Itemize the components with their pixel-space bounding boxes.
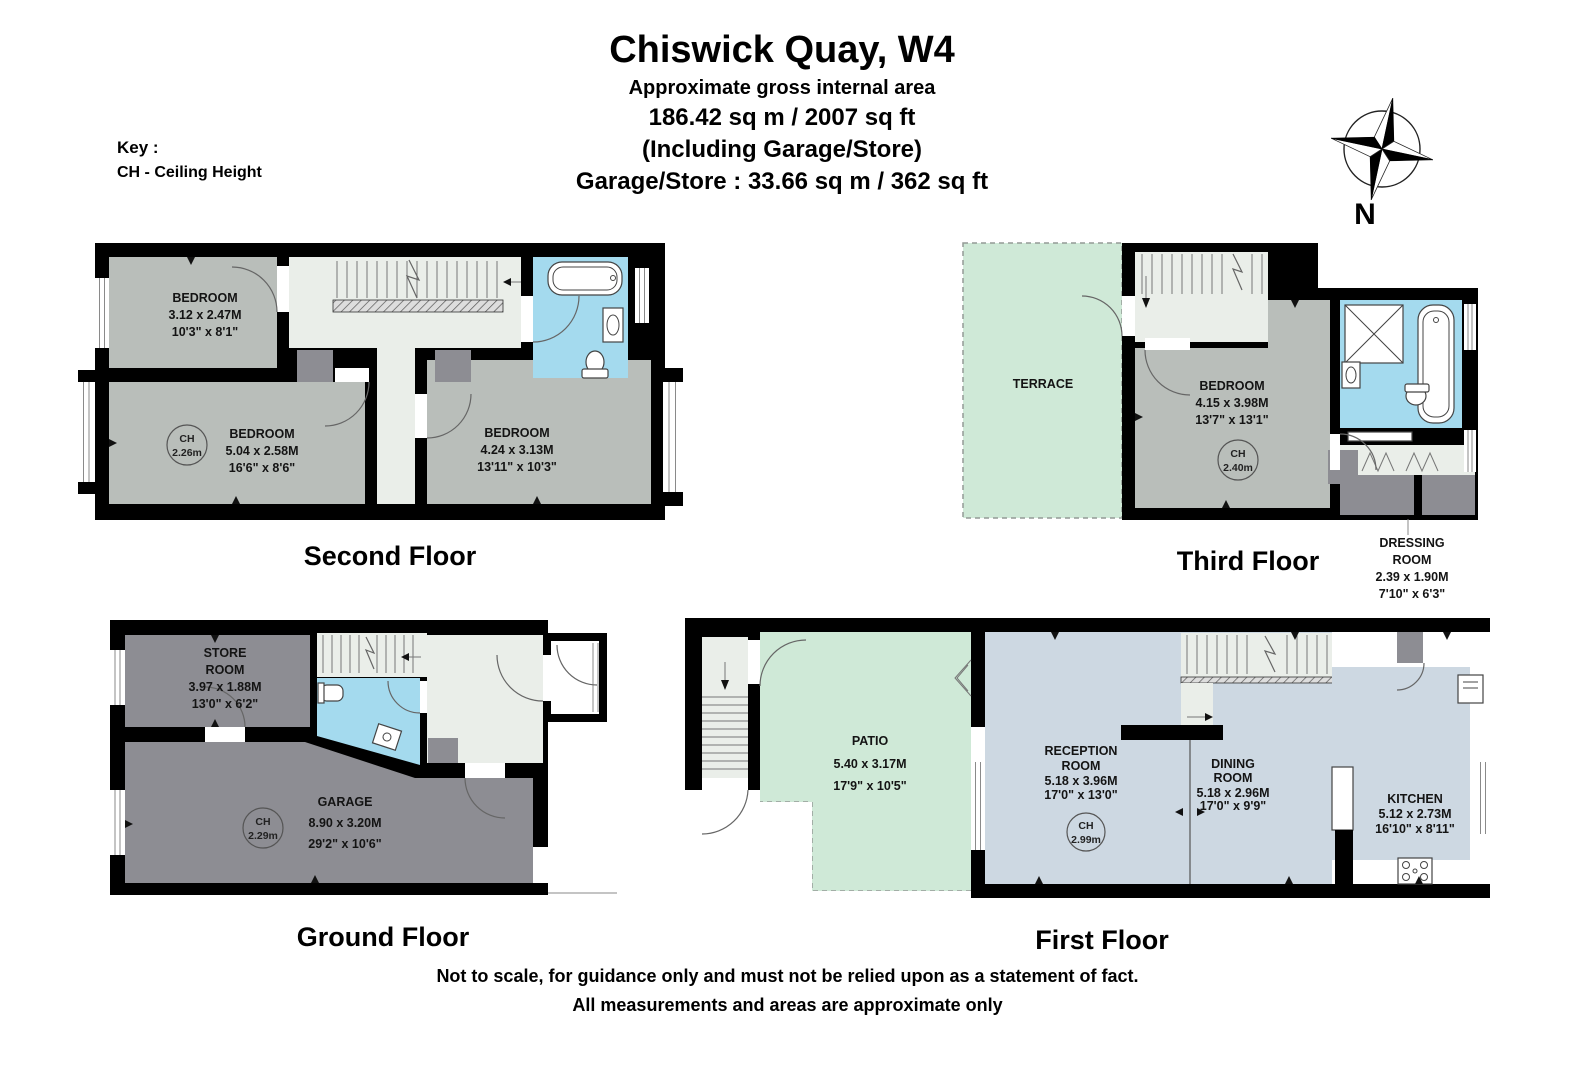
title-block: Chiswick Quay, W4 Approximate gross inte… <box>382 30 1182 196</box>
room-dim-imperial: 17'0" x 13'0" <box>1044 788 1117 802</box>
sink-icon <box>603 308 623 342</box>
door <box>702 778 748 790</box>
room-label: GARAGE <box>318 795 373 809</box>
disclaimer: Not to scale, for guidance only and must… <box>0 966 1575 1016</box>
key-block: Key : CH - Ceiling Height <box>117 138 262 182</box>
room-label: BEDROOM <box>229 427 294 441</box>
kitchen-unit <box>1397 632 1423 663</box>
svg-text:CH: CH <box>1078 820 1093 832</box>
bay-window <box>78 370 95 494</box>
room-dim-metric: 5.18 x 2.96M <box>1197 786 1270 800</box>
page-title: Chiswick Quay, W4 <box>382 30 1182 72</box>
room-dim-imperial: 13'11" x 10'3" <box>477 460 557 474</box>
dressing-divider-wall <box>1414 475 1422 515</box>
stair-halfwall <box>1121 725 1223 740</box>
dressing-room <box>1340 475 1475 515</box>
shower-icon <box>1345 305 1403 363</box>
closet <box>428 738 458 763</box>
window <box>110 650 125 705</box>
compass-rose-icon: N <box>1318 96 1458 236</box>
room-label: ROOM <box>206 663 245 677</box>
room-label: ROOM <box>1062 759 1101 773</box>
total-area: 186.42 sq m / 2007 sq ft <box>382 104 1182 132</box>
bedroom-mid-room <box>109 382 365 504</box>
bathtub-icon <box>548 262 622 295</box>
key-title: Key : <box>117 138 262 158</box>
window <box>95 278 109 348</box>
ground-floor-plan: STORE ROOM 3.97 x 1.88M 13'0" x 6'2" GAR… <box>105 615 665 915</box>
second-floor-title: Second Floor <box>304 541 477 572</box>
shelf <box>1348 432 1412 441</box>
room-label: BEDROOM <box>172 291 237 305</box>
bay-window <box>663 368 683 506</box>
garage-area: Garage/Store : 33.66 sq m / 362 sq ft <box>382 168 1182 196</box>
room-label: PATIO <box>852 734 889 748</box>
room-dim-metric: 4.24 x 3.13M <box>481 443 554 457</box>
room-dim-metric: 5.12 x 2.73M <box>1379 807 1452 821</box>
front-door <box>543 655 551 701</box>
svg-text:2.29m: 2.29m <box>248 830 278 842</box>
room-label: DRESSING <box>1379 536 1444 550</box>
room-label: BEDROOM <box>1199 379 1264 393</box>
sink-icon <box>1342 362 1360 388</box>
subtitle: Approximate gross internal area <box>382 77 1182 100</box>
room-dim-imperial: 17'9" x 10'5" <box>833 779 906 793</box>
door-opening <box>971 727 985 762</box>
room-dim-imperial: 17'0" x 9'9" <box>1200 799 1267 813</box>
room-dim-metric: 5.18 x 3.96M <box>1045 774 1118 788</box>
closet <box>435 350 471 382</box>
key-entry: CH - Ceiling Height <box>117 164 262 182</box>
svg-text:CH: CH <box>179 433 194 445</box>
staircase <box>317 633 427 677</box>
window <box>1476 762 1490 834</box>
svg-text:2.40m: 2.40m <box>1223 462 1253 474</box>
room-dim-metric: 4.15 x 3.98M <box>1196 396 1269 410</box>
stair-railing <box>333 300 503 312</box>
window <box>1464 304 1476 350</box>
compass-star <box>1320 87 1443 210</box>
door <box>748 640 760 684</box>
svg-text:CH: CH <box>255 816 270 828</box>
svg-text:2.26m: 2.26m <box>172 447 202 459</box>
room-label: BEDROOM <box>484 426 549 440</box>
stair-railing <box>1181 677 1336 683</box>
bathtub-icon <box>1418 305 1454 423</box>
room-dim-metric: 3.97 x 1.88M <box>189 680 262 694</box>
room-dim-metric: 2.39 x 1.90M <box>1376 570 1449 584</box>
closet <box>297 350 333 382</box>
toilet-icon <box>318 683 343 703</box>
room-dim-imperial: 13'0" x 6'2" <box>192 697 259 711</box>
kitchen-counter <box>1332 767 1353 830</box>
disclaimer-line2: All measurements and areas are approxima… <box>0 995 1575 1016</box>
room-dim-imperial: 7'10" x 6'3" <box>1379 587 1446 601</box>
window <box>635 268 649 323</box>
room-label: ROOM <box>1214 771 1253 785</box>
room-label: ROOM <box>1393 553 1432 567</box>
room-dim-metric: 5.04 x 2.58M <box>226 444 299 458</box>
room-dim-metric: 8.90 x 3.20M <box>309 816 382 830</box>
room-dim-imperial: 16'10" x 8'11" <box>1375 822 1455 836</box>
disclaimer-line1: Not to scale, for guidance only and must… <box>0 966 1575 987</box>
room-dim-imperial: 29'2" x 10'6" <box>308 837 381 851</box>
dressing-room-hanging <box>1340 445 1475 475</box>
room-label: STORE <box>204 646 247 660</box>
room-label: KITCHEN <box>1387 792 1443 806</box>
room-label: RECEPTION <box>1045 744 1118 758</box>
room-dim-metric: 5.40 x 3.17M <box>834 757 907 771</box>
third-floor-title: Third Floor <box>1177 546 1319 577</box>
fridge-icon <box>1458 675 1483 703</box>
including-note: (Including Garage/Store) <box>382 136 1182 164</box>
corridor <box>377 348 415 504</box>
room-dim-imperial: 10'3" x 8'1" <box>172 325 239 339</box>
north-label: N <box>1354 198 1376 231</box>
stove-icon <box>1398 858 1432 884</box>
kitchen-wall <box>1335 830 1353 884</box>
svg-text:CH: CH <box>1230 448 1245 460</box>
window <box>110 790 125 855</box>
room-dim-imperial: 16'6" x 8'6" <box>229 461 296 475</box>
second-floor-plan: BEDROOM 3.12 x 2.47M 10'3" x 8'1" BEDROO… <box>75 238 685 530</box>
window <box>1464 430 1476 472</box>
window <box>971 762 985 850</box>
room-dim-metric: 3.12 x 2.47M <box>169 308 242 322</box>
room-label: DINING <box>1211 757 1255 771</box>
svg-text:2.99m: 2.99m <box>1071 834 1101 846</box>
ground-floor-title: Ground Floor <box>297 922 469 953</box>
garage-door-opening <box>533 847 548 883</box>
first-floor-title: First Floor <box>1035 925 1169 956</box>
room-label: TERRACE <box>1013 377 1073 391</box>
first-floor-plan: PATIO 5.40 x 3.17M 17'9" x 10'5" RECEPTI… <box>675 612 1505 912</box>
room-dim-imperial: 13'7" x 13'1" <box>1195 413 1268 427</box>
